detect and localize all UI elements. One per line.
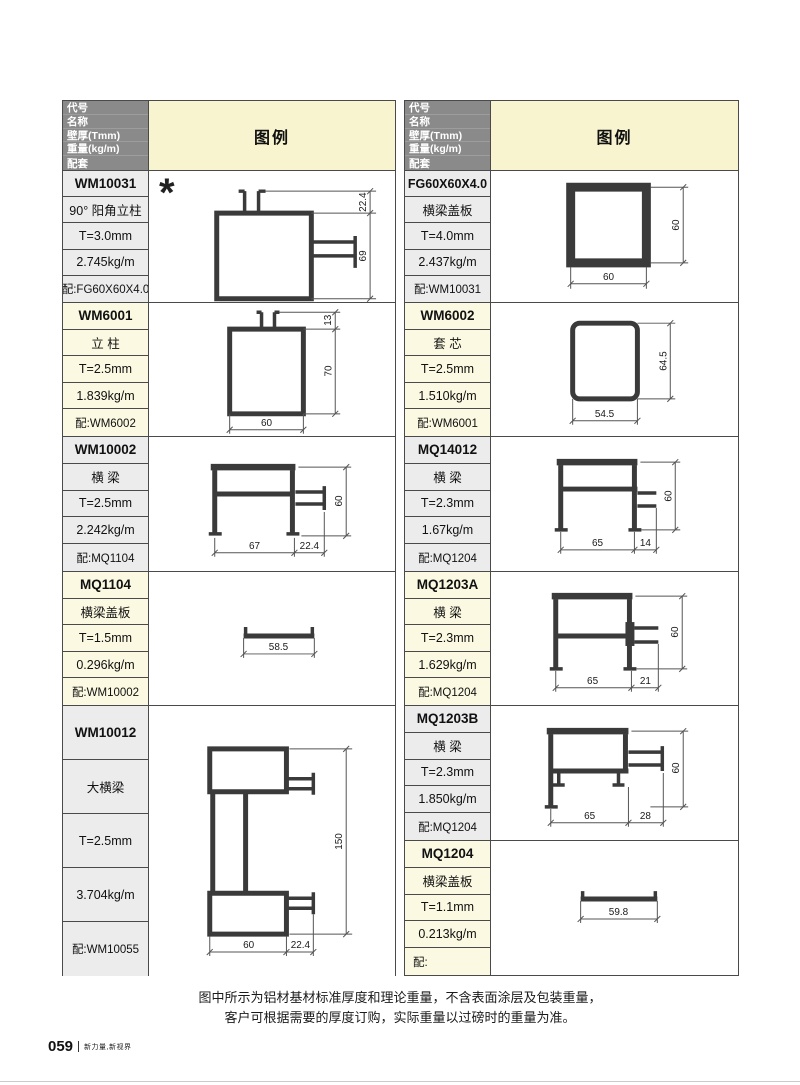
profile-thickness: T=2.5mm <box>63 491 148 518</box>
dim-label: 60 <box>261 418 273 429</box>
diagram-cell: 60 67 22.4 <box>149 437 395 571</box>
dim-label: 60 <box>243 940 255 951</box>
dim-label: 60 <box>603 272 615 283</box>
header-code: 代号 <box>405 101 490 115</box>
profile-match: 配:MQ1204 <box>405 813 490 840</box>
footnote: 图中所示为铝材基材标准厚度和理论重量，不含表面涂层及包装重量， 客户可根据需要的… <box>0 988 800 1028</box>
profile-thickness: T=4.0mm <box>405 223 490 249</box>
profile-weight: 1.850kg/m <box>405 786 490 813</box>
dim-label: 65 <box>592 538 604 549</box>
dim-label: 60 <box>671 762 682 774</box>
diagram-cell: 64.5 54.5 <box>491 303 738 436</box>
header-label-column: 代号 名称 壁厚(Tmm) 重量(kg/m) 配套 <box>405 101 491 170</box>
profile-weight: 2.437kg/m <box>405 250 490 276</box>
table-row: WM10002 横 梁 T=2.5mm 2.242kg/m 配:MQ1104 6… <box>63 437 395 572</box>
profile-drawing-wm10002: 60 67 22.4 <box>149 437 395 571</box>
diagram-cell: * 22.4 69 <box>149 171 395 302</box>
profile-drawing-fg60x60: 60 60 <box>491 171 738 302</box>
dim-label: 22.4 <box>291 940 311 951</box>
page-number: 059 <box>48 1038 73 1055</box>
footer-divider <box>78 1041 79 1052</box>
profile-code: MQ1104 <box>63 572 148 599</box>
profile-name: 横梁盖板 <box>405 197 490 223</box>
dim-label: 14 <box>640 538 652 549</box>
dim-label: 22.4 <box>358 192 369 212</box>
footnote-line-1: 图中所示为铝材基材标准厚度和理论重量，不含表面涂层及包装重量， <box>0 988 800 1008</box>
profile-weight: 0.213kg/m <box>405 921 490 948</box>
table-row: FG60X60X4.0 横梁盖板 T=4.0mm 2.437kg/m 配:WM1… <box>405 171 738 303</box>
dim-label: 60 <box>334 495 345 507</box>
profile-weight: 1.629kg/m <box>405 652 490 679</box>
header-code: 代号 <box>63 101 148 115</box>
diagram-cell: 60 65 28 <box>491 706 738 840</box>
profile-match: 配:WM10031 <box>405 276 490 302</box>
profile-drawing-mq14012: 60 65 14 <box>491 437 738 571</box>
profile-drawing-wm10031: 22.4 69 <box>149 171 395 302</box>
table-header-left: 代号 名称 壁厚(Tmm) 重量(kg/m) 配套 图例 <box>63 101 395 171</box>
diagram-cell: 60 65 21 <box>491 572 738 705</box>
profile-name: 立 柱 <box>63 330 148 357</box>
header-name: 名称 <box>63 115 148 129</box>
dim-label: 60 <box>670 626 681 638</box>
diagram-cell: 13 70 60 <box>149 303 395 436</box>
profile-match: 配:WM10055 <box>63 922 148 976</box>
profile-weight: 1.67kg/m <box>405 517 490 544</box>
table-row: WM6001 立 柱 T=2.5mm 1.839kg/m 配:WM6002 13… <box>63 303 395 437</box>
profile-name: 90° 阳角立柱 <box>63 197 148 223</box>
profile-drawing-wm10012: 150 60 22.4 <box>149 706 395 976</box>
page-bottom-edge <box>0 1081 800 1082</box>
header-thickness: 壁厚(Tmm) <box>405 129 490 143</box>
table-row: WM10031 90° 阳角立柱 T=3.0mm 2.745kg/m 配:FG6… <box>63 171 395 303</box>
header-name: 名称 <box>405 115 490 129</box>
profile-weight: 0.296kg/m <box>63 652 148 679</box>
dim-label: 21 <box>640 676 652 687</box>
profile-thickness: T=1.1mm <box>405 895 490 922</box>
profile-thickness: T=2.3mm <box>405 760 490 787</box>
footnote-line-2: 客户可根据需要的厚度订购，实际重量以过磅时的重量为准。 <box>0 1008 800 1028</box>
table-row: MQ1203A 横 梁 T=2.3mm 1.629kg/m 配:MQ1204 6… <box>405 572 738 706</box>
profile-weight: 1.510kg/m <box>405 383 490 410</box>
table-row: WM10012 大横梁 T=2.5mm 3.704kg/m 配:WM10055 … <box>63 706 395 976</box>
profile-thickness: T=2.5mm <box>63 356 148 383</box>
header-weight: 重量(kg/m) <box>405 142 490 156</box>
dim-label: 150 <box>334 833 345 850</box>
dim-label: 60 <box>671 219 682 231</box>
table-header-right: 代号 名称 壁厚(Tmm) 重量(kg/m) 配套 图例 <box>405 101 738 171</box>
header-thickness: 壁厚(Tmm) <box>63 129 148 143</box>
profile-code: WM10031 <box>63 171 148 197</box>
dim-label: 13 <box>323 314 334 326</box>
profile-match: 配:FG60X60X4.0 <box>63 276 148 302</box>
profile-match: 配:MQ1104 <box>63 544 148 571</box>
profile-code: WM10002 <box>63 437 148 464</box>
profile-drawing-mq1203b: 60 65 28 <box>491 706 738 840</box>
diagram-cell: 58.5 <box>149 572 395 705</box>
dim-label: 70 <box>323 365 334 377</box>
profile-weight: 1.839kg/m <box>63 383 148 410</box>
dim-label: 67 <box>249 541 261 552</box>
header-match: 配套 <box>63 156 148 170</box>
profile-match: 配:WM6002 <box>63 409 148 436</box>
table-row: MQ1203B 横 梁 T=2.3mm 1.850kg/m 配:MQ1204 6… <box>405 706 738 841</box>
profile-name: 横 梁 <box>405 733 490 760</box>
profile-match: 配: <box>405 948 490 975</box>
dim-label: 64.5 <box>658 351 669 371</box>
header-weight: 重量(kg/m) <box>63 142 148 156</box>
table-row: MQ14012 横 梁 T=2.3mm 1.67kg/m 配:MQ1204 60… <box>405 437 738 572</box>
profile-thickness: T=2.3mm <box>405 491 490 518</box>
profile-name: 横梁盖板 <box>63 599 148 626</box>
profile-name: 套 芯 <box>405 330 490 357</box>
table-row: MQ1204 横梁盖板 T=1.1mm 0.213kg/m 配: 59.8 <box>405 841 738 975</box>
brand-tagline: 新力量,新视界 <box>84 1042 131 1052</box>
diagram-cell: 59.8 <box>491 841 738 975</box>
profile-code: WM10012 <box>63 706 148 760</box>
profile-match: 配:WM6001 <box>405 409 490 436</box>
profile-table-left: 代号 名称 壁厚(Tmm) 重量(kg/m) 配套 图例 WM10031 90°… <box>62 100 396 976</box>
profile-code: WM6001 <box>63 303 148 330</box>
profile-match: 配:MQ1204 <box>405 678 490 705</box>
dim-label: 54.5 <box>595 409 615 420</box>
profile-thickness: T=2.5mm <box>405 356 490 383</box>
profile-name: 横 梁 <box>405 464 490 491</box>
asterisk-mark: * <box>159 173 175 213</box>
dim-label: 65 <box>587 676 599 687</box>
diagram-cell: 60 60 <box>491 171 738 302</box>
page-footer: 059 新力量,新视界 <box>48 1038 131 1055</box>
table-row: WM6002 套 芯 T=2.5mm 1.510kg/m 配:WM6001 64… <box>405 303 738 437</box>
profile-code: MQ1204 <box>405 841 490 868</box>
diagram-cell: 150 60 22.4 <box>149 706 395 976</box>
dim-label: 69 <box>358 250 369 262</box>
dim-label: 59.8 <box>609 907 629 918</box>
legend-header: 图例 <box>149 101 395 170</box>
profile-code: WM6002 <box>405 303 490 330</box>
profile-code: MQ14012 <box>405 437 490 464</box>
profile-weight: 2.242kg/m <box>63 517 148 544</box>
profile-name: 横 梁 <box>405 599 490 626</box>
profile-weight: 3.704kg/m <box>63 868 148 922</box>
profile-code: MQ1203B <box>405 706 490 733</box>
header-label-column: 代号 名称 壁厚(Tmm) 重量(kg/m) 配套 <box>63 101 149 170</box>
profile-drawing-mq1204: 59.8 <box>491 841 738 975</box>
profile-match: 配:MQ1204 <box>405 544 490 571</box>
profile-name: 横 梁 <box>63 464 148 491</box>
table-row: MQ1104 横梁盖板 T=1.5mm 0.296kg/m 配:WM10002 … <box>63 572 395 706</box>
dim-label: 58.5 <box>269 642 289 653</box>
legend-header: 图例 <box>491 101 738 170</box>
profile-table-right: 代号 名称 壁厚(Tmm) 重量(kg/m) 配套 图例 FG60X60X4.0… <box>404 100 739 976</box>
profile-drawing-mq1104: 58.5 <box>149 572 395 705</box>
header-match: 配套 <box>405 156 490 170</box>
profile-thickness: T=2.3mm <box>405 625 490 652</box>
profile-thickness: T=2.5mm <box>63 814 148 868</box>
profile-name: 大横梁 <box>63 760 148 814</box>
dim-label: 28 <box>640 811 652 822</box>
profile-drawing-wm6001: 13 70 60 <box>149 303 395 436</box>
profile-match: 配:WM10002 <box>63 678 148 705</box>
profile-thickness: T=1.5mm <box>63 625 148 652</box>
profile-code: MQ1203A <box>405 572 490 599</box>
profile-weight: 2.745kg/m <box>63 250 148 276</box>
profile-code: FG60X60X4.0 <box>405 171 490 197</box>
profile-thickness: T=3.0mm <box>63 223 148 249</box>
profile-drawing-wm6002: 64.5 54.5 <box>491 303 738 436</box>
profile-name: 横梁盖板 <box>405 868 490 895</box>
dim-label: 60 <box>663 490 674 502</box>
diagram-cell: 60 65 14 <box>491 437 738 571</box>
profile-drawing-mq1203a: 60 65 21 <box>491 572 738 705</box>
dim-label: 22.4 <box>300 541 320 552</box>
dim-label: 65 <box>584 811 596 822</box>
